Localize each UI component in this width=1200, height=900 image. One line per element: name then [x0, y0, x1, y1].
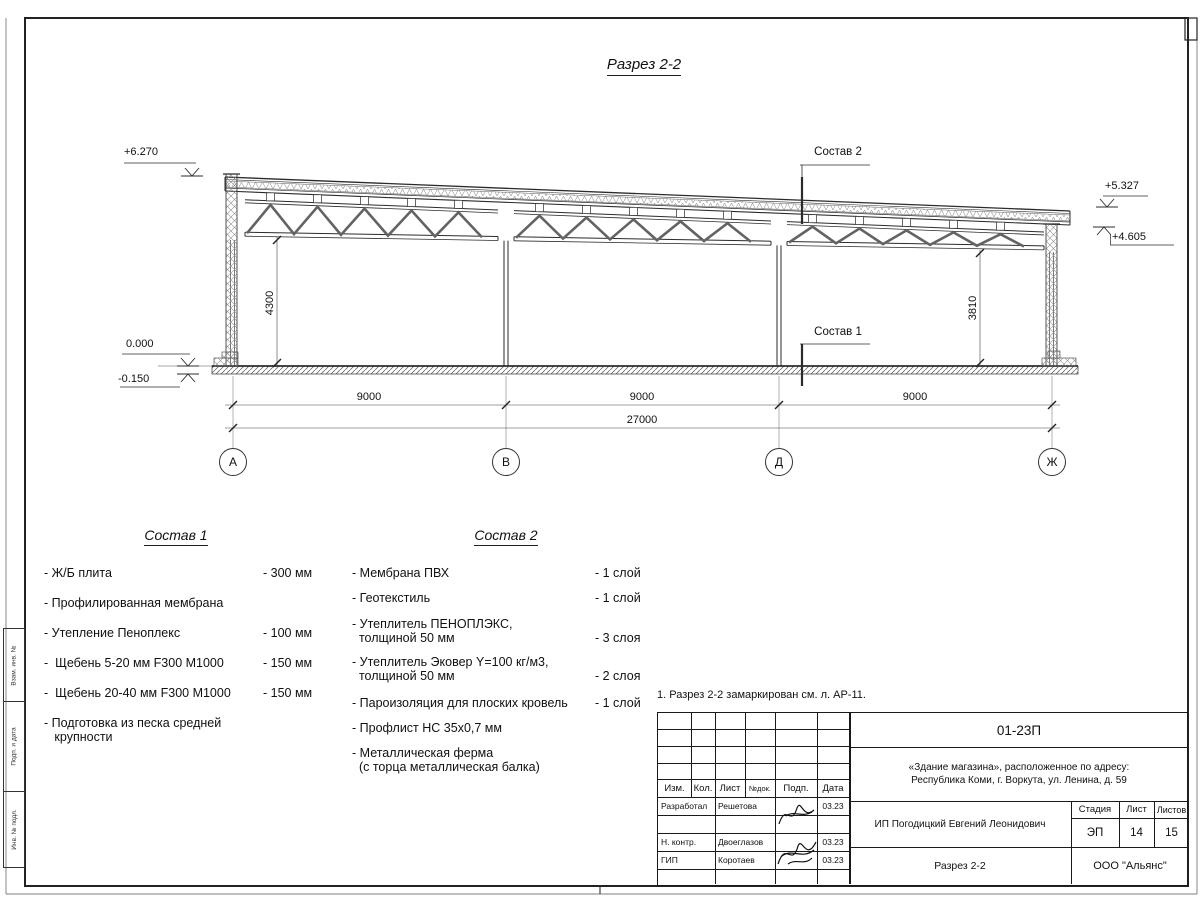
list-item: - Утепление Пеноплекс- 100 мм: [44, 626, 354, 640]
list-item: - Ж/Б плита- 300 мм: [44, 566, 354, 580]
elevation-zero: 0.000: [126, 338, 154, 350]
tb-stage-label: Стадия: [1071, 801, 1119, 818]
tb-doc-number: 01-23П: [849, 713, 1189, 747]
dim-height-right: 3810: [967, 290, 979, 326]
signature: [776, 798, 817, 832]
list-item: - Мембрана ПВХ- 1 слой: [352, 566, 672, 580]
axis-bubble-a: А: [218, 455, 248, 469]
sostav1-title: Состав 1: [116, 527, 236, 543]
axis-bubbles: [220, 449, 1066, 476]
elevation-below-zero: -0.150: [118, 373, 149, 385]
elevation-left-top: +6.270: [124, 146, 158, 158]
list-item: - Профилированная мембрана: [44, 596, 354, 610]
list-item: - Утеплитель Эковер Y=100 кг/м3, толщино…: [352, 655, 672, 683]
frame-side-cell: Инв. № подл.: [4, 791, 24, 867]
list-item: - Пароизоляция для плоских кровель- 1 сл…: [352, 696, 672, 710]
sheet-note: 1. Разрез 2-2 замаркирован см. л. АР-11.: [657, 689, 866, 701]
list-item: - Щебень 5-20 мм F300 М1000- 150 мм: [44, 656, 354, 670]
tb-header-ndok: №док.: [745, 779, 775, 797]
roof-assembly: [225, 177, 1070, 225]
tb-header-kol: Кол.: [691, 779, 715, 797]
drawing-sheet: Разрез 2-2 +6.270 0.000 -0.150 +5.327 +4…: [0, 0, 1200, 900]
leader-lines: [800, 165, 870, 386]
tb-stage-value: ЭП: [1071, 818, 1119, 847]
dim-span-3: 9000: [875, 391, 955, 403]
tb-name-ncontrol: Двоеглазов: [715, 833, 775, 851]
tb-date-developer: 03.23: [817, 797, 849, 815]
dim-height-left: 4300: [264, 285, 276, 321]
signature: [776, 834, 817, 868]
tb-header-izm: Изм.: [658, 779, 691, 797]
dim-total: 27000: [602, 414, 682, 426]
tb-sheets-label: Листов: [1154, 801, 1189, 818]
frame-side-cell: Взам. инв. №: [4, 629, 24, 701]
tb-project: «Здание магазина», расположенное по адре…: [849, 747, 1189, 801]
tb-sheet-label: Лист: [1119, 801, 1154, 818]
tb-role-ncontrol: Н. контр.: [658, 833, 715, 851]
list-item: - Металлическая ферма (с торца металличе…: [352, 746, 672, 774]
callout-sostav1: Состав 1: [798, 326, 878, 338]
tb-role-gip: ГИП: [658, 851, 715, 869]
tb-header-list: Лист: [715, 779, 745, 797]
tb-name-gip: Коротаев: [715, 851, 775, 869]
tb-drawing-name: Разрез 2-2: [849, 847, 1071, 884]
list-item: - Подготовка из песка средней крупности: [44, 716, 354, 744]
tb-name-developer: Решетова: [715, 797, 775, 815]
tb-date-ncontrol: 03.23: [817, 833, 849, 851]
tb-sheet-value: 14: [1119, 818, 1154, 847]
tb-company: ООО "Альянс": [1071, 847, 1189, 884]
truss-span: [514, 204, 771, 246]
list-item: - Утеплитель ПЕНОПЛЭКС, толщиной 50 мм- …: [352, 617, 672, 645]
frame-side-cell: Подп. и дата: [4, 701, 24, 791]
page-title: Разрез 2-2: [564, 56, 724, 73]
tb-header-podp: Подп.: [775, 779, 817, 797]
axis-bubble-zh: Ж: [1037, 455, 1067, 469]
floor-slab: [158, 351, 1078, 374]
tb-date-gip: 03.23: [817, 851, 849, 869]
dim-span-1: 9000: [329, 391, 409, 403]
tb-sheets-value: 15: [1154, 818, 1189, 847]
sostav2-title: Состав 2: [446, 527, 566, 543]
list-item: - Геотекстиль- 1 слой: [352, 591, 672, 605]
columns: [231, 240, 1054, 366]
elevation-right-under: +4.605: [1112, 231, 1146, 243]
tb-role-developer: Разработал: [658, 797, 715, 815]
callout-sostav2: Состав 2: [798, 146, 878, 158]
truss-span: [787, 215, 1044, 250]
tb-client: ИП Погодицкий Евгений Леонидович: [849, 801, 1071, 847]
tb-header-data: Дата: [817, 779, 849, 797]
frame-side-strip: Взам. инв. № Подп. и дата Инв. № подл.: [3, 628, 25, 868]
dim-span-2: 9000: [602, 391, 682, 403]
axis-bubble-v: В: [491, 455, 521, 469]
elevation-right-top: +5.327: [1105, 180, 1139, 192]
axis-bubble-d: Д: [764, 455, 794, 469]
list-item: - Профлист НС 35х0,7 мм: [352, 721, 672, 735]
title-block: Изм. Кол. Лист №док. Подп. Дата Разработ…: [657, 712, 1188, 886]
list-item: - Щебень 20-40 мм F300 М1000- 150 мм: [44, 686, 354, 700]
